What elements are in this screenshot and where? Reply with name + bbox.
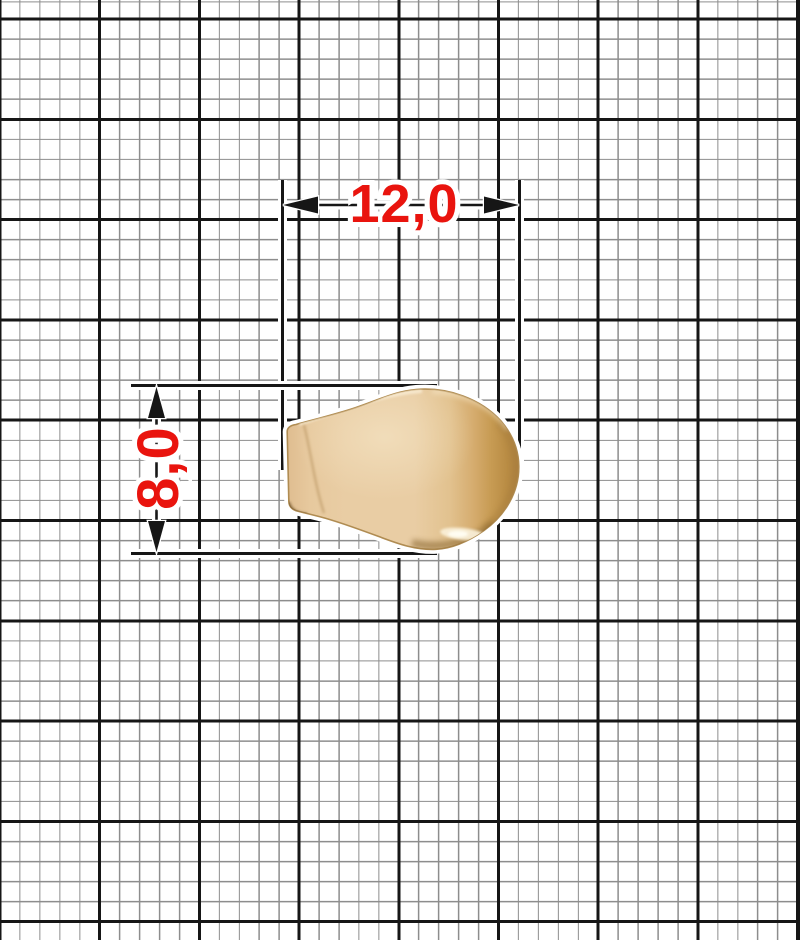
arrowhead-down-icon [148, 521, 165, 552]
measured-object-cord-end-tip [287, 389, 519, 549]
width-dimension-label: 12,0 12,0 [349, 177, 458, 231]
height-dimension-label: 8,0 8,0 [130, 426, 188, 510]
arrowhead-left-icon [283, 197, 318, 214]
arrowhead-up-icon [148, 387, 165, 418]
arrowhead-right-icon [484, 197, 519, 214]
bottom-specular-core [448, 531, 468, 537]
dimension-drawing: 12,0 12,0 8,0 8,0 [0, 0, 800, 940]
height-label-text: 8,0 [126, 426, 191, 510]
width-label-text: 12,0 [349, 174, 458, 234]
drawing-overlay [0, 0, 800, 940]
